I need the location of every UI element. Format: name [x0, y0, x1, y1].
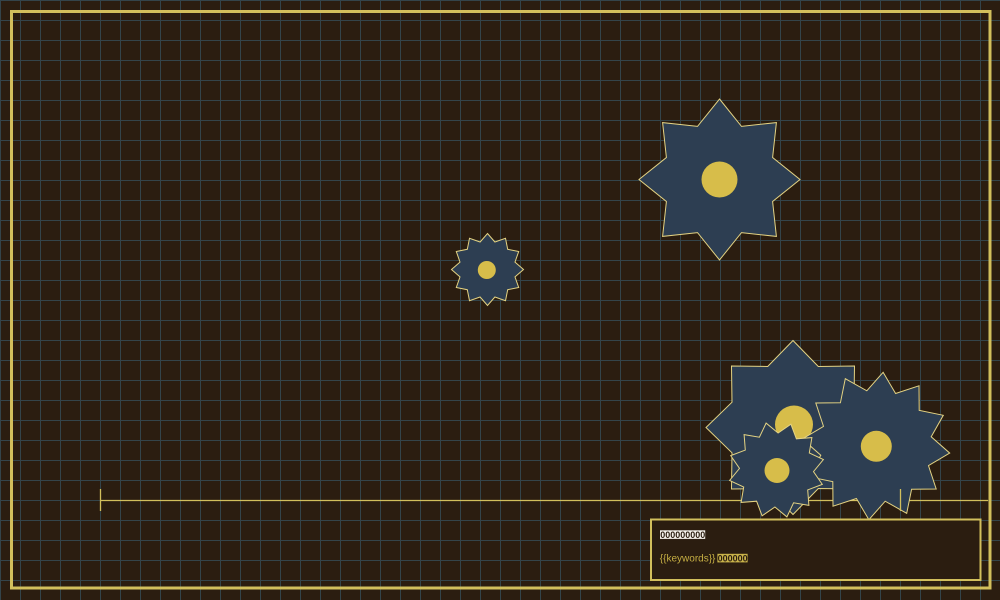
svg-text:000000000: 000000000 — [660, 530, 705, 540]
svg-text:{{keywords}}: {{keywords}} — [660, 554, 716, 565]
svg-text:000000: 000000 — [718, 553, 748, 563]
